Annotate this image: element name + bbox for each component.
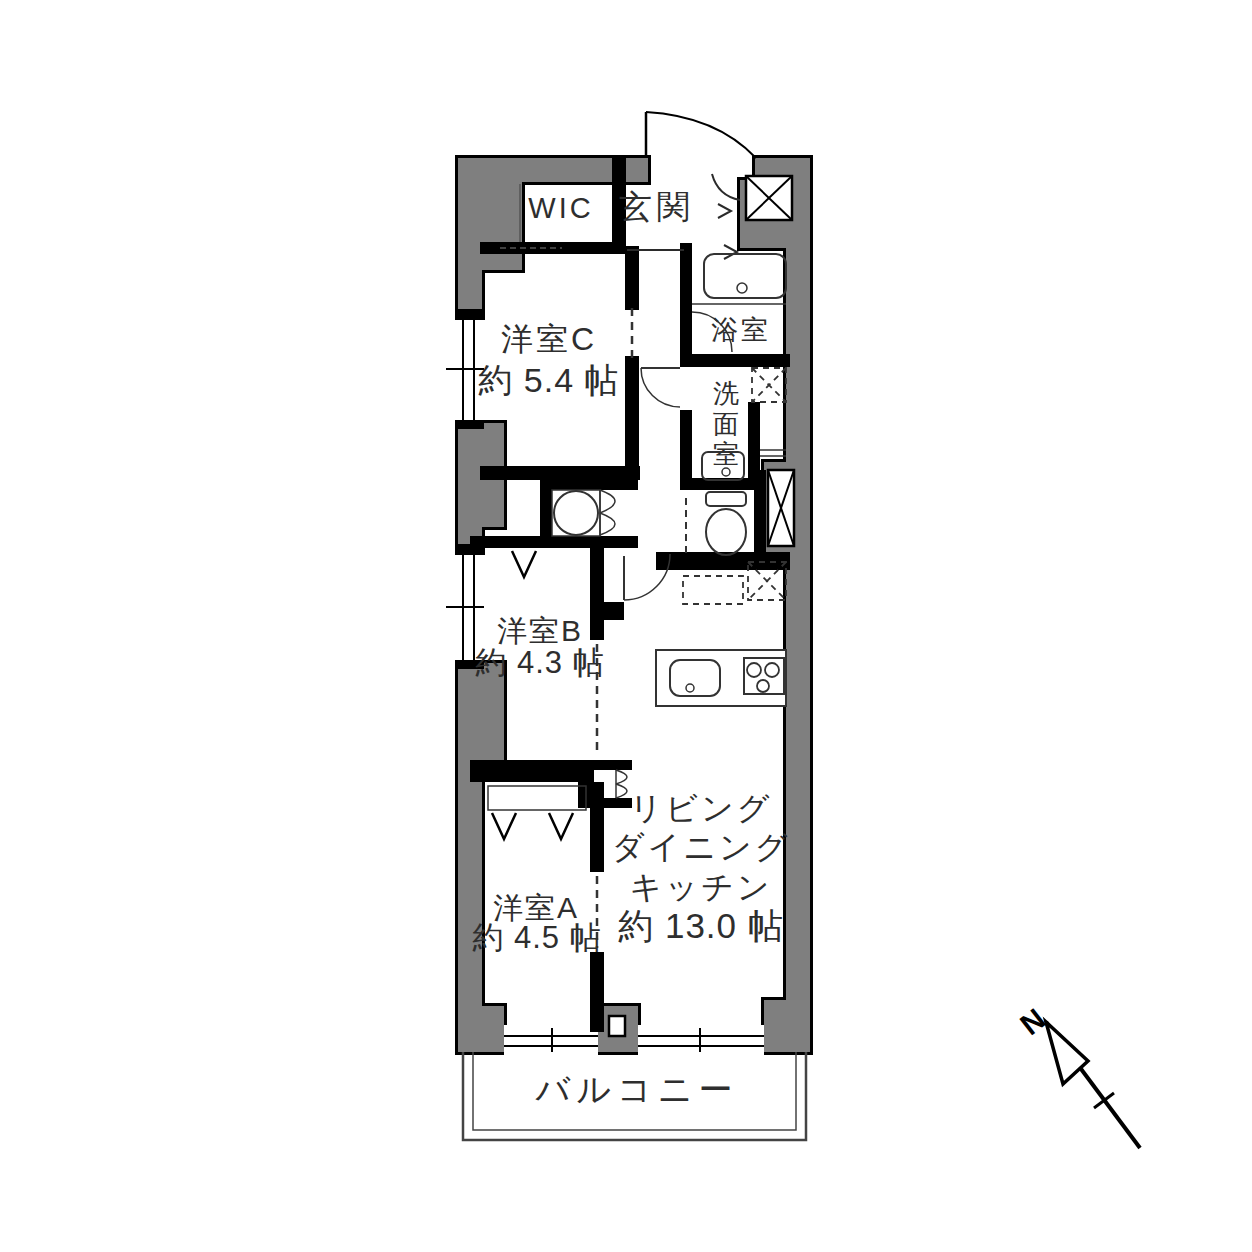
room-b-label: 洋室B bbox=[497, 614, 583, 647]
louver-vent bbox=[760, 450, 786, 456]
bath-label: 浴室 bbox=[711, 316, 771, 346]
pillar-vent-hole bbox=[609, 1016, 625, 1036]
rooma-closet-front bbox=[488, 786, 586, 810]
hall-closet-bifold-doors bbox=[600, 490, 615, 536]
toilet bbox=[706, 492, 746, 555]
fridge-space-dashed bbox=[683, 576, 743, 604]
bathtub bbox=[692, 254, 786, 304]
ldk-label-line3: キッチン bbox=[630, 870, 773, 905]
rooma-closet-bifold-doors bbox=[616, 770, 627, 798]
ldk-size: 約 13.0 帖 bbox=[618, 907, 784, 946]
washroom-dashed-box bbox=[752, 368, 786, 402]
wic-label: WIC bbox=[528, 193, 593, 225]
washer-space bbox=[552, 490, 600, 536]
front-door bbox=[646, 112, 756, 158]
room-b-size: 約 4.3 帖 bbox=[475, 646, 604, 680]
floorplan-page: N WIC 玄関 洋室C 約 5.4 帖 浴室 洗 面 室 洋室B 約 4.3 … bbox=[0, 0, 1252, 1252]
room-c-size: 約 5.4 帖 bbox=[478, 362, 619, 399]
washroom-label: 洗 面 室 bbox=[713, 378, 739, 470]
room-a-size: 約 4.5 帖 bbox=[472, 921, 601, 955]
balcony-label: バルコニー bbox=[535, 1071, 738, 1108]
shaft-mid-x-box bbox=[768, 470, 794, 546]
genkan-label: 玄関 bbox=[619, 189, 695, 225]
north-arrow: N bbox=[1014, 1002, 1140, 1148]
room-a-label: 洋室A bbox=[493, 891, 579, 924]
washroom-door bbox=[641, 368, 680, 407]
ldk-label-line1: リビング bbox=[630, 791, 773, 826]
room-c-label: 洋室C bbox=[501, 322, 597, 357]
north-label: N bbox=[1014, 1002, 1051, 1041]
shaft-top-x-box bbox=[746, 176, 792, 220]
ldk-label-line2: ダイニング bbox=[612, 830, 791, 865]
